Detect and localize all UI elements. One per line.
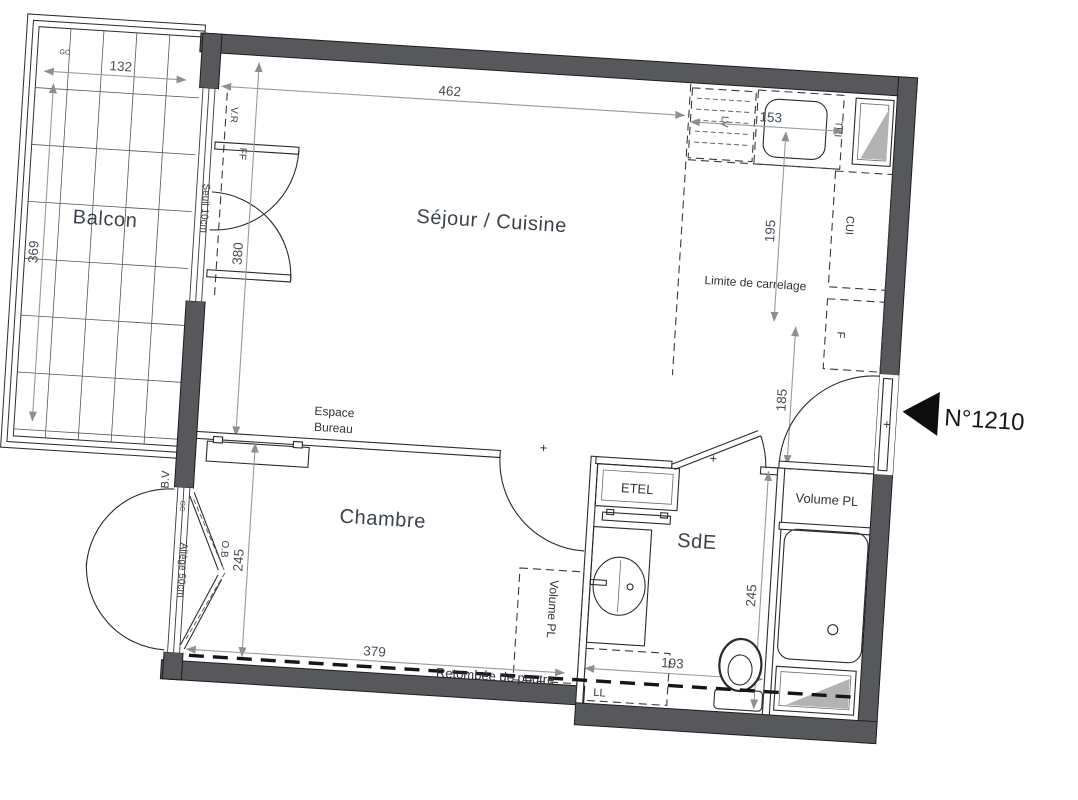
sde-door-leaf bbox=[675, 431, 761, 475]
espace-bureau-label-1: Espace bbox=[314, 404, 355, 421]
espace-bureau-label-2: Bureau bbox=[314, 420, 354, 436]
sink-zone bbox=[754, 90, 844, 169]
wall-top bbox=[200, 33, 918, 97]
ob-label: O.B bbox=[218, 540, 230, 558]
tile-limit-label: Limite de carrelage bbox=[704, 273, 807, 293]
door-swing-arc bbox=[759, 436, 768, 468]
entry: + N°1210 bbox=[779, 368, 1027, 483]
shower-room-label: SdE bbox=[677, 530, 718, 554]
washbasin-drain bbox=[627, 584, 633, 590]
dim-153: 153 bbox=[759, 109, 782, 125]
window-glazing-icon bbox=[860, 107, 889, 161]
unit-number: N°1210 bbox=[943, 404, 1025, 436]
balcony-railing-mid bbox=[7, 20, 205, 452]
volume-pl-bedroom-label: Volume PL bbox=[544, 580, 562, 639]
cui-label: CUI bbox=[843, 216, 856, 236]
balcony-door-leaf-bottom bbox=[207, 270, 291, 282]
toilet bbox=[714, 638, 766, 712]
balcony-railing-outer bbox=[1, 14, 206, 458]
door-pivot-marker: + bbox=[883, 416, 892, 431]
balcony-door-leaf-top bbox=[215, 142, 299, 154]
gc-label-window: GC bbox=[178, 500, 186, 511]
volume-pl-entry: Volume PL bbox=[783, 468, 874, 510]
living-label: Séjour / Cuisine bbox=[416, 206, 568, 237]
dim-132: 132 bbox=[109, 58, 132, 74]
wall-left-bottom bbox=[162, 652, 183, 680]
balcony-railing-inner bbox=[13, 27, 204, 447]
entry-arrow-icon bbox=[901, 390, 940, 436]
ll-label: LL bbox=[593, 687, 606, 700]
washbasin-divider bbox=[617, 560, 620, 612]
entry-door-leaf-open bbox=[779, 461, 874, 474]
dim-379: 379 bbox=[363, 643, 386, 659]
window-swing-arc bbox=[86, 484, 174, 572]
fridge-zone bbox=[823, 299, 884, 372]
volume-pl-entry-label: Volume PL bbox=[795, 490, 859, 509]
bedroom-window: B.V GC Allège 50cm O.B bbox=[81, 465, 234, 655]
window-open-dashes bbox=[185, 499, 230, 643]
gc-label-balcony: GC bbox=[59, 49, 70, 57]
door-swing-arc bbox=[207, 192, 296, 281]
living-kitchen: Séjour / Cuisine 462 Limite de carrelage… bbox=[200, 54, 897, 470]
kitchen-unit-zone bbox=[828, 171, 892, 290]
washbasin-tap bbox=[590, 579, 606, 585]
wall-sde-top-stub bbox=[760, 467, 777, 475]
dim-369: 369 bbox=[25, 240, 41, 263]
dim-193: 193 bbox=[661, 655, 684, 671]
shower-drain bbox=[827, 624, 838, 635]
desk-leg bbox=[293, 441, 302, 448]
wall-sde-top bbox=[596, 457, 672, 469]
volet-roulant-line bbox=[214, 93, 227, 298]
dim-195: 195 bbox=[762, 219, 778, 242]
dim-185: 185 bbox=[773, 388, 789, 411]
balcony-label: Balcon bbox=[72, 206, 138, 232]
door-pivot-marker: + bbox=[709, 451, 718, 466]
tile-limit-line bbox=[672, 84, 690, 375]
etel-label: ETEL bbox=[621, 480, 654, 497]
dim-462: 462 bbox=[438, 83, 461, 99]
toilet-bowl bbox=[718, 638, 763, 693]
desk-leg bbox=[213, 436, 222, 443]
door-pivot-marker: + bbox=[539, 440, 548, 455]
shower-tray bbox=[777, 529, 869, 664]
dim-245-bedroom: 245 bbox=[230, 549, 246, 572]
sde-door: + bbox=[672, 425, 769, 475]
bv-label: B.V bbox=[159, 470, 172, 489]
wall-left-mid bbox=[174, 300, 205, 488]
bedroom-label: Chambre bbox=[339, 506, 427, 533]
balcony: Balcon GC 132 369 bbox=[1, 14, 206, 458]
wall-left-top bbox=[200, 33, 222, 89]
balcony-tile-grid bbox=[13, 27, 204, 447]
ff-label: FF bbox=[236, 147, 248, 160]
vr-label: V.R bbox=[227, 107, 239, 123]
window-swing-arc bbox=[81, 562, 169, 650]
dim-245-sde: 245 bbox=[743, 584, 759, 607]
door-swing-arc bbox=[494, 455, 589, 550]
dim-380: 380 bbox=[230, 242, 246, 265]
lv-label: LV bbox=[718, 116, 730, 128]
fridge-label: F bbox=[834, 331, 846, 339]
exterior-walls bbox=[159, 33, 917, 744]
door-swing-arc bbox=[779, 370, 880, 471]
plan-rotated-group: Balcon GC 132 369 V.R FF bbox=[0, 14, 1046, 752]
tri-label: TRI bbox=[832, 121, 844, 138]
floor-plan: Balcon GC 132 369 V.R FF bbox=[0, 0, 1078, 800]
